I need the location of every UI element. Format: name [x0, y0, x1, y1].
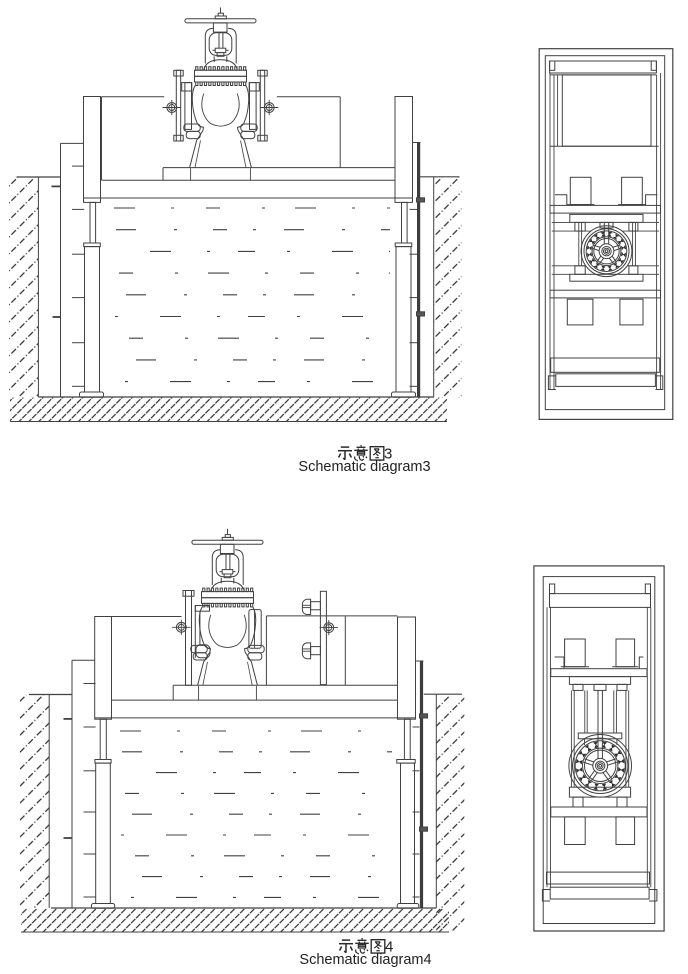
- svg-text:Schematic diagram3: Schematic diagram3: [298, 459, 430, 475]
- svg-text:Schematic diagram4: Schematic diagram4: [299, 952, 431, 968]
